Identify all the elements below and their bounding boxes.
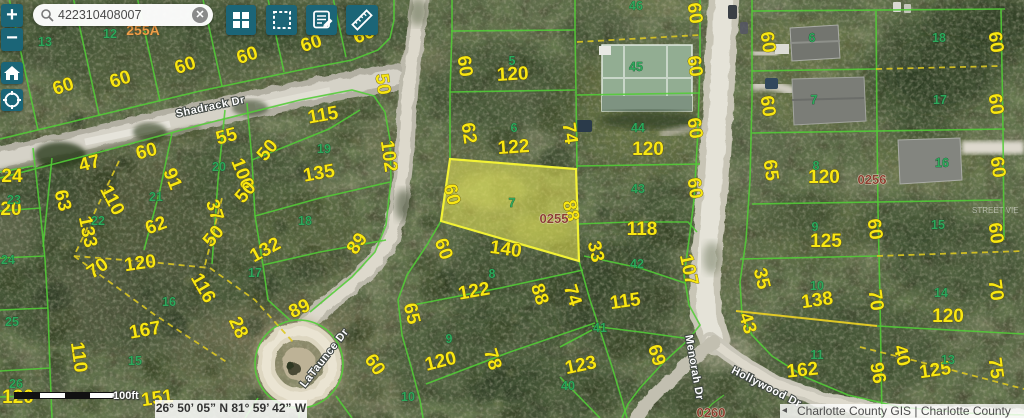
svg-text:16: 16 bbox=[162, 295, 176, 309]
svg-text:17: 17 bbox=[933, 93, 947, 107]
svg-text:40: 40 bbox=[561, 379, 575, 393]
svg-text:60: 60 bbox=[986, 155, 1010, 179]
svg-text:60: 60 bbox=[863, 217, 887, 241]
svg-text:18: 18 bbox=[298, 214, 312, 228]
svg-text:15: 15 bbox=[931, 218, 945, 232]
svg-text:10: 10 bbox=[810, 279, 824, 293]
svg-text:140: 140 bbox=[489, 237, 523, 262]
svg-text:42: 42 bbox=[630, 257, 644, 271]
svg-text:22: 22 bbox=[91, 214, 105, 228]
svg-text:5: 5 bbox=[509, 54, 516, 68]
svg-text:8: 8 bbox=[813, 159, 820, 173]
svg-text:0260: 0260 bbox=[697, 405, 726, 418]
svg-text:60: 60 bbox=[683, 176, 707, 200]
svg-text:70: 70 bbox=[984, 278, 1008, 302]
svg-text:43: 43 bbox=[631, 182, 645, 196]
svg-text:118: 118 bbox=[627, 219, 658, 240]
svg-text:7: 7 bbox=[811, 93, 818, 107]
svg-text:0256: 0256 bbox=[858, 172, 887, 187]
svg-text:25: 25 bbox=[5, 315, 19, 329]
svg-text:120: 120 bbox=[123, 251, 157, 276]
svg-text:15: 15 bbox=[128, 354, 142, 368]
svg-text:102: 102 bbox=[376, 139, 401, 173]
svg-text:7: 7 bbox=[509, 196, 516, 210]
svg-text:14: 14 bbox=[934, 286, 948, 300]
svg-text:50: 50 bbox=[371, 72, 395, 96]
svg-text:41: 41 bbox=[593, 321, 607, 335]
svg-text:13: 13 bbox=[38, 35, 52, 49]
svg-text:60: 60 bbox=[683, 1, 707, 25]
svg-text:11: 11 bbox=[810, 348, 823, 362]
svg-text:60: 60 bbox=[683, 116, 707, 140]
svg-text:18: 18 bbox=[932, 31, 946, 45]
svg-text:62: 62 bbox=[457, 121, 481, 145]
svg-text:120: 120 bbox=[632, 139, 664, 160]
svg-text:96: 96 bbox=[865, 361, 889, 385]
svg-text:60: 60 bbox=[984, 30, 1008, 54]
svg-text:10: 10 bbox=[401, 390, 415, 404]
svg-text:115: 115 bbox=[609, 289, 643, 314]
svg-text:24: 24 bbox=[1, 166, 23, 187]
svg-text:8: 8 bbox=[489, 267, 496, 281]
svg-text:46: 46 bbox=[629, 0, 643, 13]
svg-text:70: 70 bbox=[864, 288, 888, 312]
svg-text:60: 60 bbox=[756, 30, 780, 54]
svg-text:STREET VIE: STREET VIE bbox=[972, 206, 1019, 215]
svg-text:12: 12 bbox=[103, 27, 117, 41]
svg-text:60: 60 bbox=[683, 54, 707, 78]
svg-text:9: 9 bbox=[446, 332, 453, 346]
svg-text:20: 20 bbox=[212, 160, 226, 174]
svg-text:0255: 0255 bbox=[540, 211, 569, 226]
svg-text:125: 125 bbox=[810, 231, 842, 252]
svg-text:120: 120 bbox=[932, 306, 964, 327]
svg-text:26: 26 bbox=[9, 377, 23, 391]
svg-text:6: 6 bbox=[809, 31, 816, 45]
svg-text:65: 65 bbox=[759, 158, 783, 182]
svg-text:45: 45 bbox=[629, 60, 643, 74]
svg-text:23: 23 bbox=[7, 193, 21, 207]
svg-text:122: 122 bbox=[497, 136, 530, 159]
svg-text:60: 60 bbox=[984, 92, 1008, 116]
svg-text:9: 9 bbox=[812, 220, 819, 234]
svg-text:19: 19 bbox=[317, 142, 331, 156]
svg-text:60: 60 bbox=[756, 94, 780, 118]
svg-text:17: 17 bbox=[248, 266, 262, 280]
svg-text:44: 44 bbox=[631, 121, 645, 135]
svg-text:21: 21 bbox=[149, 190, 163, 204]
svg-text:16: 16 bbox=[935, 156, 949, 170]
svg-text:60: 60 bbox=[453, 54, 477, 78]
svg-text:13: 13 bbox=[941, 353, 955, 367]
svg-text:60: 60 bbox=[984, 221, 1008, 245]
svg-text:162: 162 bbox=[786, 358, 820, 382]
svg-text:110: 110 bbox=[66, 341, 91, 374]
svg-text:74: 74 bbox=[558, 121, 582, 145]
svg-text:75: 75 bbox=[984, 356, 1008, 380]
svg-text:24: 24 bbox=[1, 253, 15, 267]
svg-text:6: 6 bbox=[511, 121, 518, 135]
